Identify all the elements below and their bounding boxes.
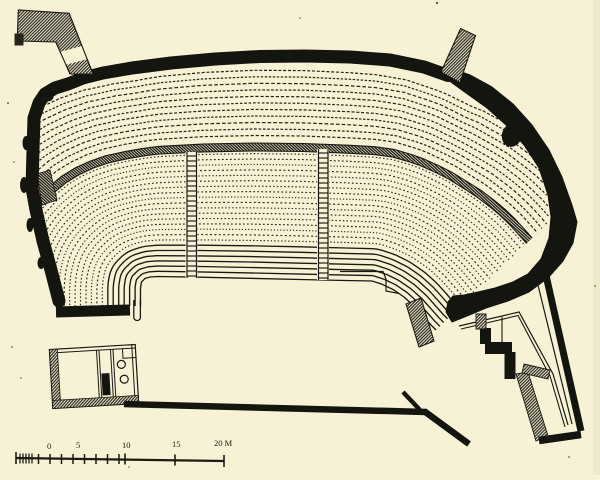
svg-text:0: 0 — [47, 441, 51, 451]
svg-text:10: 10 — [122, 440, 131, 450]
svg-text:5: 5 — [76, 440, 80, 450]
svg-text:20 M: 20 M — [214, 438, 233, 448]
svg-text:15: 15 — [172, 439, 181, 449]
